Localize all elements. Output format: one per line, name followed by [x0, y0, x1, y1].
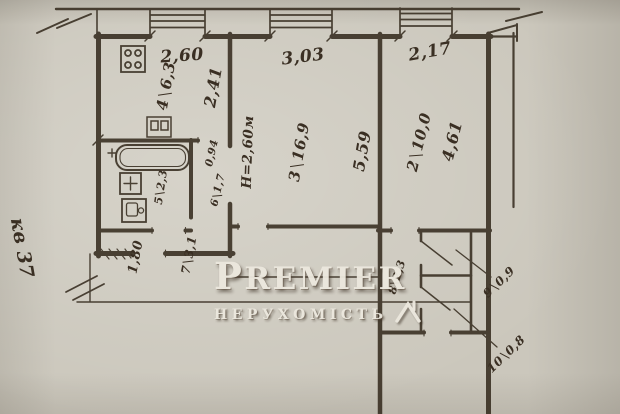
fraction-bar	[182, 260, 193, 262]
kitchen-sink-icon	[147, 117, 171, 137]
fraction-bar	[155, 192, 165, 195]
watermark-subtitle: НЕРУХОМІСТЬ	[214, 307, 388, 323]
stove-icon	[121, 46, 145, 72]
fraction-bar	[212, 195, 222, 197]
ceiling-height-note: Н=2,60м	[239, 115, 258, 189]
floor-plan-scan: кв 37 2,60 3,03 2,17 2,41 5,59 4,61 0,94…	[0, 0, 620, 414]
fraction-bar	[157, 93, 171, 96]
watermark-brand: PREMIER	[214, 258, 421, 295]
dimension-arrow-marks	[66, 276, 104, 300]
fraction-bar	[289, 164, 303, 167]
bathtub-icon	[108, 145, 189, 170]
window-symbol-kitchen	[150, 10, 205, 34]
loggia-side-wall	[493, 33, 517, 207]
inner-walls	[230, 34, 380, 414]
wall-break-arrow-left-icon	[37, 14, 91, 33]
window-symbol-living	[270, 10, 332, 34]
roof-logo-icon	[395, 299, 421, 323]
wash-sink-icon	[120, 173, 141, 194]
window-symbol-bedroom	[400, 8, 452, 34]
fraction-bar	[409, 154, 423, 156]
toilet-icon	[122, 199, 146, 222]
watermark: PREMIER НЕРУХОМІСТЬ	[214, 258, 421, 323]
